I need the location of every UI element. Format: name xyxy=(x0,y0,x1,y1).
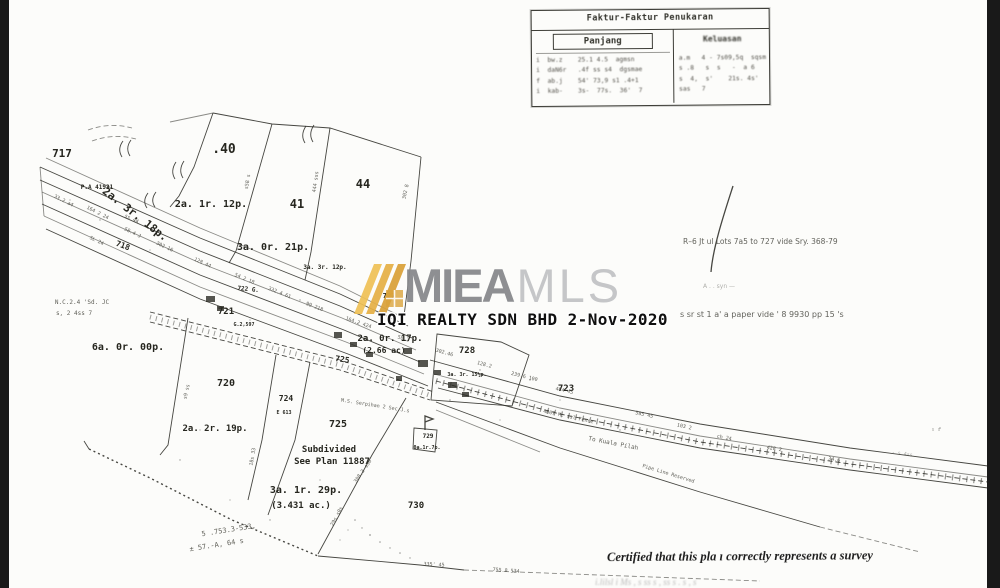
scan-speckle xyxy=(409,557,410,558)
scan-speckle xyxy=(499,419,500,420)
map-label: 302.46 xyxy=(435,348,454,359)
lot-boundary xyxy=(213,113,421,157)
map-label: 717 xyxy=(52,147,72,160)
road-lines xyxy=(40,167,44,216)
map-label: (2.66 ac) xyxy=(362,346,405,355)
map-label: s9 ss xyxy=(183,384,192,400)
railway-lines xyxy=(150,317,432,396)
scan-speckle xyxy=(379,541,381,543)
map-label: s58 s xyxy=(244,174,253,190)
lot-boundary xyxy=(170,113,421,316)
map-label: 729 xyxy=(423,433,434,440)
map-label: 724 xyxy=(279,394,294,403)
stream-marks xyxy=(311,125,314,142)
lot-boundary xyxy=(170,113,213,122)
map-label: Subdivided xyxy=(302,444,356,455)
scan-speckle xyxy=(319,479,320,480)
map-label: 2a. 0r. 17p. xyxy=(357,334,422,344)
map-label: R–6 Jt ul Lots 7a5 to 727 vide Sry. 368-… xyxy=(683,237,838,246)
column-header-keluasan: Keluasan xyxy=(679,34,766,44)
map-label: s, 2 4ss 7 xyxy=(56,310,93,317)
scan-speckle xyxy=(354,519,356,521)
stream-marks xyxy=(173,162,176,179)
map-label: 728 xyxy=(459,346,475,356)
map-label: 302 8 xyxy=(402,184,411,200)
map-label: (3.431 ac.) xyxy=(271,501,331,511)
building-marks xyxy=(434,370,441,375)
map-label: 302 16 xyxy=(155,241,174,254)
map-label: See Plan 11887 xyxy=(294,457,370,467)
scan-speckle xyxy=(69,199,940,558)
scan-speckle xyxy=(619,429,620,430)
scan-speckle xyxy=(299,299,300,300)
survey-map-drawing: 717P.A 419312a. 3r. 18p.718.4041442a. 1r… xyxy=(0,0,1000,588)
lot-boundary xyxy=(425,416,433,430)
table-rows-right: a.m 4 - 7s09,5q sqsm s .8 s s - a 6 s 4,… xyxy=(679,51,767,95)
map-label: E 613 xyxy=(276,410,291,416)
scan-speckle xyxy=(369,534,371,536)
building-marks xyxy=(418,360,428,367)
railway-lines xyxy=(436,381,988,482)
scan-speckle xyxy=(399,552,401,554)
stream-marks xyxy=(303,126,306,143)
map-label: 585 45 xyxy=(635,410,654,420)
map-label: 725 xyxy=(329,419,347,430)
table-row: s .8 s s - a 6 xyxy=(679,63,766,74)
map-label: 3a. 0r. 21p. xyxy=(237,242,309,253)
map-label: N.C.2.4 'Sd. JC xyxy=(55,299,110,306)
lot-boundary xyxy=(84,441,89,449)
stream-marks xyxy=(88,125,132,130)
map-label: 128 44 xyxy=(193,257,212,270)
pipe-line xyxy=(436,410,540,452)
scan-speckle xyxy=(389,547,390,548)
stream-marks xyxy=(153,192,156,207)
map-label: G.2,597 xyxy=(233,322,254,328)
stream-marks xyxy=(145,193,148,208)
map-label: .40 xyxy=(212,142,236,157)
map-label: 29s s0s xyxy=(330,506,345,527)
scan-speckle xyxy=(339,539,340,540)
map-label: A . . syn — xyxy=(703,283,735,290)
map-label: 718 xyxy=(115,239,132,252)
lot-boundary xyxy=(305,128,330,280)
table-title: Faktur-Faktur Penukaran xyxy=(532,9,769,31)
table-body: Panjang i bw.z 25.1 4.5 agmsn i daN6r .4… xyxy=(532,29,770,104)
scan-speckle xyxy=(559,399,560,400)
map-label: 3a. 1r. 29p. xyxy=(270,485,342,496)
map-label: 3a. 3r. 15½p. xyxy=(447,371,486,378)
map-label: To Kuala Pilah xyxy=(588,435,639,452)
stream-marks xyxy=(92,136,136,141)
bottom-cutoff-text: i.lilsl i Ms , s ss s , ss s . s , s xyxy=(595,577,985,588)
scanned-survey-plan: 717P.A 419312a. 3r. 18p.718.4041442a. 1r… xyxy=(0,0,1000,588)
lot-boundary xyxy=(170,113,213,207)
map-label: 0a.1r.7p. xyxy=(413,445,440,451)
scan-speckle xyxy=(149,249,150,250)
scan-speckle xyxy=(179,459,180,460)
pen-stroke xyxy=(711,186,733,272)
map-label: 444 sss xyxy=(312,171,321,193)
table-column-keluasan: Keluasan a.m 4 - 7s09,5q sqsm s .8 s s -… xyxy=(674,29,770,103)
stream-marks xyxy=(120,141,123,157)
building-marks xyxy=(462,392,469,397)
building-marks xyxy=(448,382,457,388)
map-label: 730 xyxy=(408,501,424,511)
railway-lines xyxy=(150,312,988,488)
map-label: 2a. 2r. 19p. xyxy=(182,424,247,434)
map-label: 720 xyxy=(217,378,235,389)
table-column-panjang: Panjang i bw.z 25.1 4.5 agmsn i daN6r .4… xyxy=(532,30,674,104)
map-label: 103 2 xyxy=(676,423,692,432)
map-label: 5 .753.3-533, xyxy=(201,522,256,538)
map-label: 54 2 18 xyxy=(234,272,256,286)
lot-boundary xyxy=(404,157,421,316)
map-label: 6a. 0r. 00p. xyxy=(92,342,164,353)
table-row: a.m 4 - 7s09,5q sqsm xyxy=(679,53,766,64)
map-label: 2a. 1r. 12p. xyxy=(175,199,247,210)
scan-speckle xyxy=(269,519,270,520)
building-marks xyxy=(206,296,215,302)
map-label: 755.8 534 xyxy=(492,567,519,575)
scan-speckle xyxy=(479,369,480,370)
lot-boundary xyxy=(248,355,276,500)
stream-marks xyxy=(128,140,131,156)
map-label: M.S. Serpihan 2 Sec J.s xyxy=(340,398,409,415)
building-marks xyxy=(350,342,357,347)
conversion-table: Faktur-Faktur Penukaran Panjang i bw.z 2… xyxy=(531,8,771,107)
table-rows-left: i bw.z 25.1 4.5 agmsn i daN6r .4f ss s4 … xyxy=(536,52,670,98)
stream-marks xyxy=(181,161,184,178)
map-label: 239.6 100 xyxy=(510,371,538,383)
map-label: 3a. 3r. 12p. xyxy=(303,264,346,271)
scan-speckle xyxy=(449,399,451,401)
scan-speckle xyxy=(347,529,348,530)
map-label: 44 xyxy=(356,177,370,191)
map-label: 721 xyxy=(218,307,234,317)
table-row: i kab- 3s- 77s. 36' 7 xyxy=(536,86,670,98)
map-labels: 717P.A 419312a. 3r. 18p.718.4041442a. 1r… xyxy=(52,142,940,575)
map-label: - s 4ss xyxy=(891,449,913,458)
scan-speckle xyxy=(361,527,362,528)
building-marks xyxy=(334,332,342,338)
map-label: 727 xyxy=(383,292,396,300)
map-label: 332.4 61 xyxy=(267,286,292,301)
scan-edge-left xyxy=(0,0,9,588)
map-label: ch 24 xyxy=(716,434,732,443)
map-label: 34.6 xyxy=(828,456,841,464)
map-label: 58.4 J xyxy=(123,226,142,239)
table-row: sas 7 xyxy=(679,84,766,95)
scan-speckle xyxy=(99,219,100,220)
map-label: SL 24 xyxy=(88,235,104,247)
railway-lines xyxy=(436,381,988,482)
building-marks xyxy=(396,376,402,381)
road-lines xyxy=(46,158,400,316)
map-label: 128.2 xyxy=(476,360,492,370)
map-label: 33.2 a4 xyxy=(53,194,75,209)
scan-speckle xyxy=(249,319,250,320)
column-header-panjang: Panjang xyxy=(553,33,653,50)
scan-speckle xyxy=(229,499,230,500)
map-label: 99 218 xyxy=(305,301,324,313)
pipe-line xyxy=(436,402,820,527)
lot-boundary xyxy=(160,318,188,455)
table-row: s 4, s' 21s. 4s' xyxy=(679,74,766,85)
map-label: s s xyxy=(931,427,940,433)
certification-text: Certified that this pla ı correctly repr… xyxy=(607,548,937,565)
map-label: ± 57.-A, 64 s xyxy=(189,537,244,553)
map-label: s sr st 1 a' a paper vide ' 8 9930 pp 15… xyxy=(680,310,844,319)
map-label: 722 G. xyxy=(237,285,259,294)
map-label: 41 xyxy=(290,197,304,211)
map-label: 335' 45 xyxy=(423,561,444,568)
scan-edge-right xyxy=(987,0,1000,588)
